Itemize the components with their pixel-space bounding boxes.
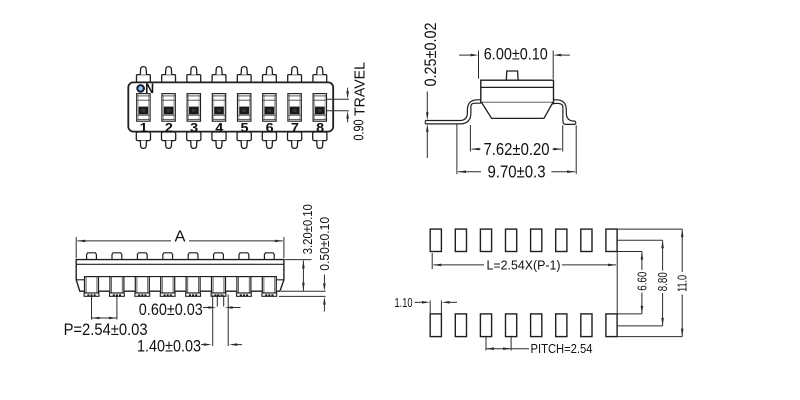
svg-text:11.0: 11.0 — [675, 275, 690, 292]
svg-text:9.70±0.3: 9.70±0.3 — [488, 162, 546, 182]
svg-text:1.40±0.03: 1.40±0.03 — [137, 336, 201, 355]
svg-text:P=2.54±0.03: P=2.54±0.03 — [64, 320, 148, 339]
svg-text:4: 4 — [215, 120, 224, 135]
svg-text:A: A — [175, 228, 187, 245]
svg-text:3.20±0.10: 3.20±0.10 — [300, 204, 315, 254]
svg-text:1: 1 — [140, 120, 148, 135]
svg-text:7: 7 — [291, 120, 299, 135]
svg-text:5: 5 — [241, 120, 249, 135]
svg-text:6.00±0.10: 6.00±0.10 — [484, 45, 548, 64]
svg-text:0.90: 0.90 — [350, 120, 367, 141]
svg-text:0.60±0.03: 0.60±0.03 — [139, 300, 203, 319]
svg-text:6: 6 — [266, 120, 274, 135]
svg-text:L=2.54X(P-1): L=2.54X(P-1) — [487, 257, 561, 272]
svg-text:TRAVEL: TRAVEL — [351, 62, 368, 116]
svg-text:1.10: 1.10 — [395, 295, 413, 310]
svg-text:0.25±0.02: 0.25±0.02 — [421, 23, 440, 87]
svg-text:8.80: 8.80 — [655, 272, 670, 291]
svg-text:8: 8 — [316, 120, 324, 135]
svg-text:3: 3 — [190, 120, 198, 135]
svg-text:PITCH=2.54: PITCH=2.54 — [531, 341, 593, 356]
svg-text:7.62±0.20: 7.62±0.20 — [484, 139, 550, 159]
svg-text:6.60: 6.60 — [634, 272, 649, 291]
svg-text:2: 2 — [165, 120, 173, 135]
svg-text:0.50±0.10: 0.50±0.10 — [317, 217, 332, 271]
